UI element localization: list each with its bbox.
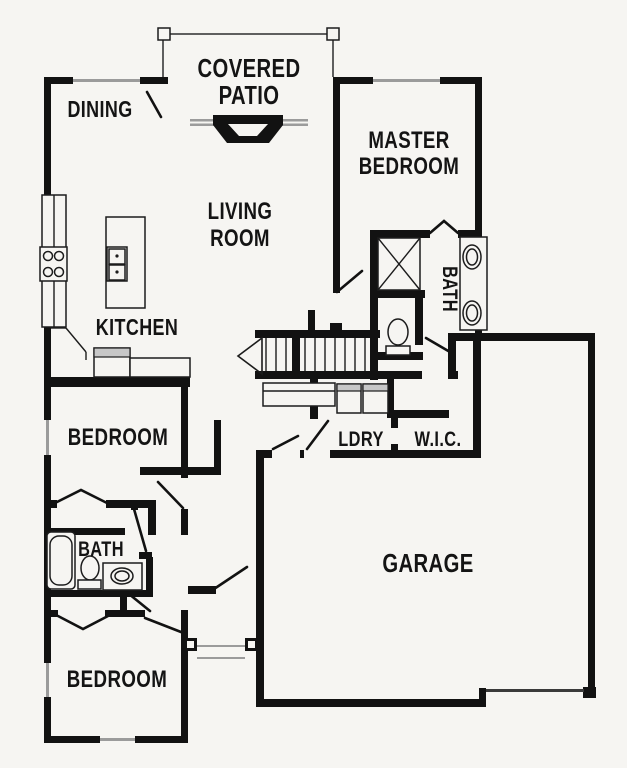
counter-icon (130, 358, 190, 377)
walls (44, 77, 596, 743)
floor-plan-drawing: COVERED PATIO DINING MASTER BEDROOM LIVI… (0, 0, 627, 768)
door-swing-icon (337, 271, 362, 292)
porch-post-icon (245, 638, 258, 651)
kitchen-fixtures (40, 195, 190, 377)
double-vanity-sink-icon (460, 237, 487, 330)
porch-post-icon (184, 638, 197, 651)
label-dining: DINING (67, 97, 132, 123)
floor-plan: COVERED PATIO DINING MASTER BEDROOM LIVI… (0, 0, 627, 768)
label-walk-in-closet: W.I.C. (415, 427, 462, 450)
door-swing-icon (426, 338, 450, 352)
patio-post-icon (327, 28, 339, 40)
label-living-room-line1: LIVING (208, 198, 273, 225)
label-covered-patio-line1: COVERED (198, 54, 301, 83)
toilet-icon (78, 556, 101, 589)
island-sink-icon (107, 247, 127, 281)
label-laundry: LDRY (338, 427, 384, 450)
label-master-bath: BATH (439, 266, 462, 312)
label-covered-patio-line2: PATIO (219, 81, 280, 110)
washer-icon (337, 384, 361, 413)
shower-icon (378, 238, 420, 290)
counter-icon (263, 383, 335, 406)
door-swing-icon (145, 618, 181, 632)
corner-pantry (51, 328, 86, 360)
garage-door-icon (486, 689, 584, 692)
window-icon (373, 77, 440, 84)
door-swing-icon (55, 490, 107, 503)
staircase-icon (238, 338, 365, 374)
label-garage: GARAGE (382, 549, 473, 578)
label-bedroom-corner: BEDROOM (67, 666, 167, 693)
laundry-fixtures (263, 383, 388, 413)
range-stove-icon (40, 247, 67, 281)
window-icon (100, 736, 135, 743)
dryer-icon (363, 384, 388, 413)
door-swing-icon (430, 221, 458, 233)
window-icon (44, 420, 51, 455)
label-bedroom-front: BEDROOM (68, 424, 168, 451)
dishwasher-icon (94, 348, 130, 377)
label-hall-bath: BATH (78, 537, 124, 560)
fireplace-icon (213, 115, 283, 143)
door-swing-icon (147, 92, 161, 117)
front-porch (184, 638, 258, 659)
stair-direction-arrow-icon (238, 338, 262, 374)
door-swing-icon (158, 482, 183, 508)
kitchen-island (106, 217, 145, 308)
toilet-icon (386, 319, 410, 355)
label-master-bedroom-line2: BEDROOM (359, 153, 459, 180)
window-icon (44, 663, 51, 697)
door-swing-icon (273, 436, 298, 449)
label-living-room-line2: ROOM (210, 225, 270, 252)
vanity-sink-icon (103, 563, 142, 590)
bathtub-icon (47, 532, 75, 589)
door-swing-icon (58, 616, 108, 629)
window-icon (73, 77, 140, 84)
patio-post-icon (158, 28, 170, 40)
door-swing-icon (307, 421, 328, 449)
label-kitchen: KITCHEN (96, 315, 178, 341)
label-master-bedroom-line1: MASTER (368, 127, 449, 154)
door-swing-icon (134, 509, 146, 551)
door-swing-icon (214, 567, 247, 589)
